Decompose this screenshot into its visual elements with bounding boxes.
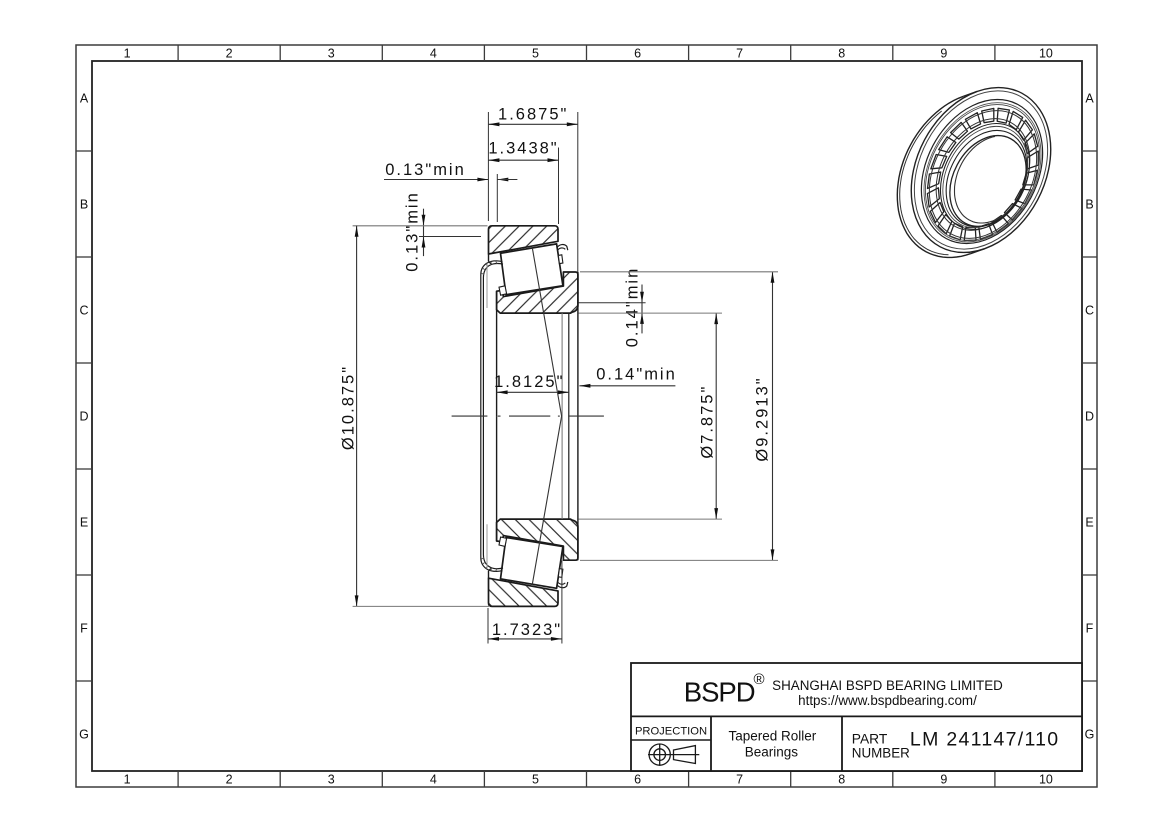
svg-text:0.13"min: 0.13"min [404, 191, 422, 272]
svg-text:LM 241147/110: LM 241147/110 [910, 729, 1060, 751]
svg-text:1: 1 [124, 773, 131, 787]
svg-text:0.14"min: 0.14"min [596, 366, 677, 384]
svg-text:1.8125": 1.8125" [494, 373, 564, 391]
svg-text:Ø7.875": Ø7.875" [699, 385, 717, 459]
svg-text:10: 10 [1039, 47, 1053, 61]
svg-text:F: F [1086, 622, 1094, 636]
svg-text:8: 8 [838, 47, 845, 61]
svg-text:D: D [79, 410, 88, 424]
svg-text:1.7323": 1.7323" [492, 621, 562, 639]
svg-text:SHANGHAI BSPD BEARING LIMITED: SHANGHAI BSPD BEARING LIMITED [772, 678, 1003, 693]
svg-text:10: 10 [1039, 773, 1053, 787]
svg-text:BSPD: BSPD [684, 677, 755, 708]
svg-text:NUMBER: NUMBER [852, 745, 910, 760]
svg-text:4: 4 [430, 773, 437, 787]
svg-text:E: E [80, 516, 88, 530]
svg-text:5: 5 [532, 47, 539, 61]
svg-text:G: G [1085, 728, 1095, 742]
svg-text:B: B [1085, 198, 1093, 212]
svg-text:9: 9 [940, 773, 947, 787]
svg-text:PROJECTION: PROJECTION [635, 726, 707, 738]
svg-text:F: F [80, 622, 88, 636]
svg-text:Ø9.2913": Ø9.2913" [754, 376, 772, 461]
svg-text:9: 9 [940, 47, 947, 61]
svg-text:6: 6 [634, 773, 641, 787]
svg-text:0.13"min: 0.13"min [385, 161, 466, 179]
svg-text:C: C [79, 304, 88, 318]
svg-text:1.3438": 1.3438" [488, 139, 558, 157]
svg-text:8: 8 [838, 773, 845, 787]
svg-text:A: A [1085, 92, 1094, 106]
svg-text:7: 7 [736, 773, 743, 787]
svg-text:1: 1 [124, 47, 131, 61]
svg-text:G: G [79, 728, 89, 742]
svg-text:®: ® [753, 671, 764, 688]
svg-text:6: 6 [634, 47, 641, 61]
svg-text:A: A [80, 92, 89, 106]
svg-text:1.6875": 1.6875" [498, 106, 568, 124]
svg-text:7: 7 [736, 47, 743, 61]
svg-text:2: 2 [226, 773, 233, 787]
svg-text:D: D [1085, 410, 1094, 424]
svg-text:4: 4 [430, 47, 437, 61]
svg-text:0.14"min: 0.14"min [624, 267, 642, 348]
svg-text:Bearings: Bearings [745, 745, 799, 760]
svg-text:B: B [80, 198, 88, 212]
svg-text:Ø10.875": Ø10.875" [340, 365, 358, 450]
svg-text:C: C [1085, 304, 1094, 318]
svg-text:5: 5 [532, 773, 539, 787]
svg-text:Tapered Roller: Tapered Roller [729, 728, 817, 743]
svg-text:2: 2 [226, 47, 233, 61]
svg-text:3: 3 [328, 773, 335, 787]
svg-text:E: E [1085, 516, 1093, 530]
svg-text:https://www.bspdbearing.com/: https://www.bspdbearing.com/ [798, 693, 977, 708]
svg-text:3: 3 [328, 47, 335, 61]
svg-text:PART: PART [852, 732, 888, 747]
